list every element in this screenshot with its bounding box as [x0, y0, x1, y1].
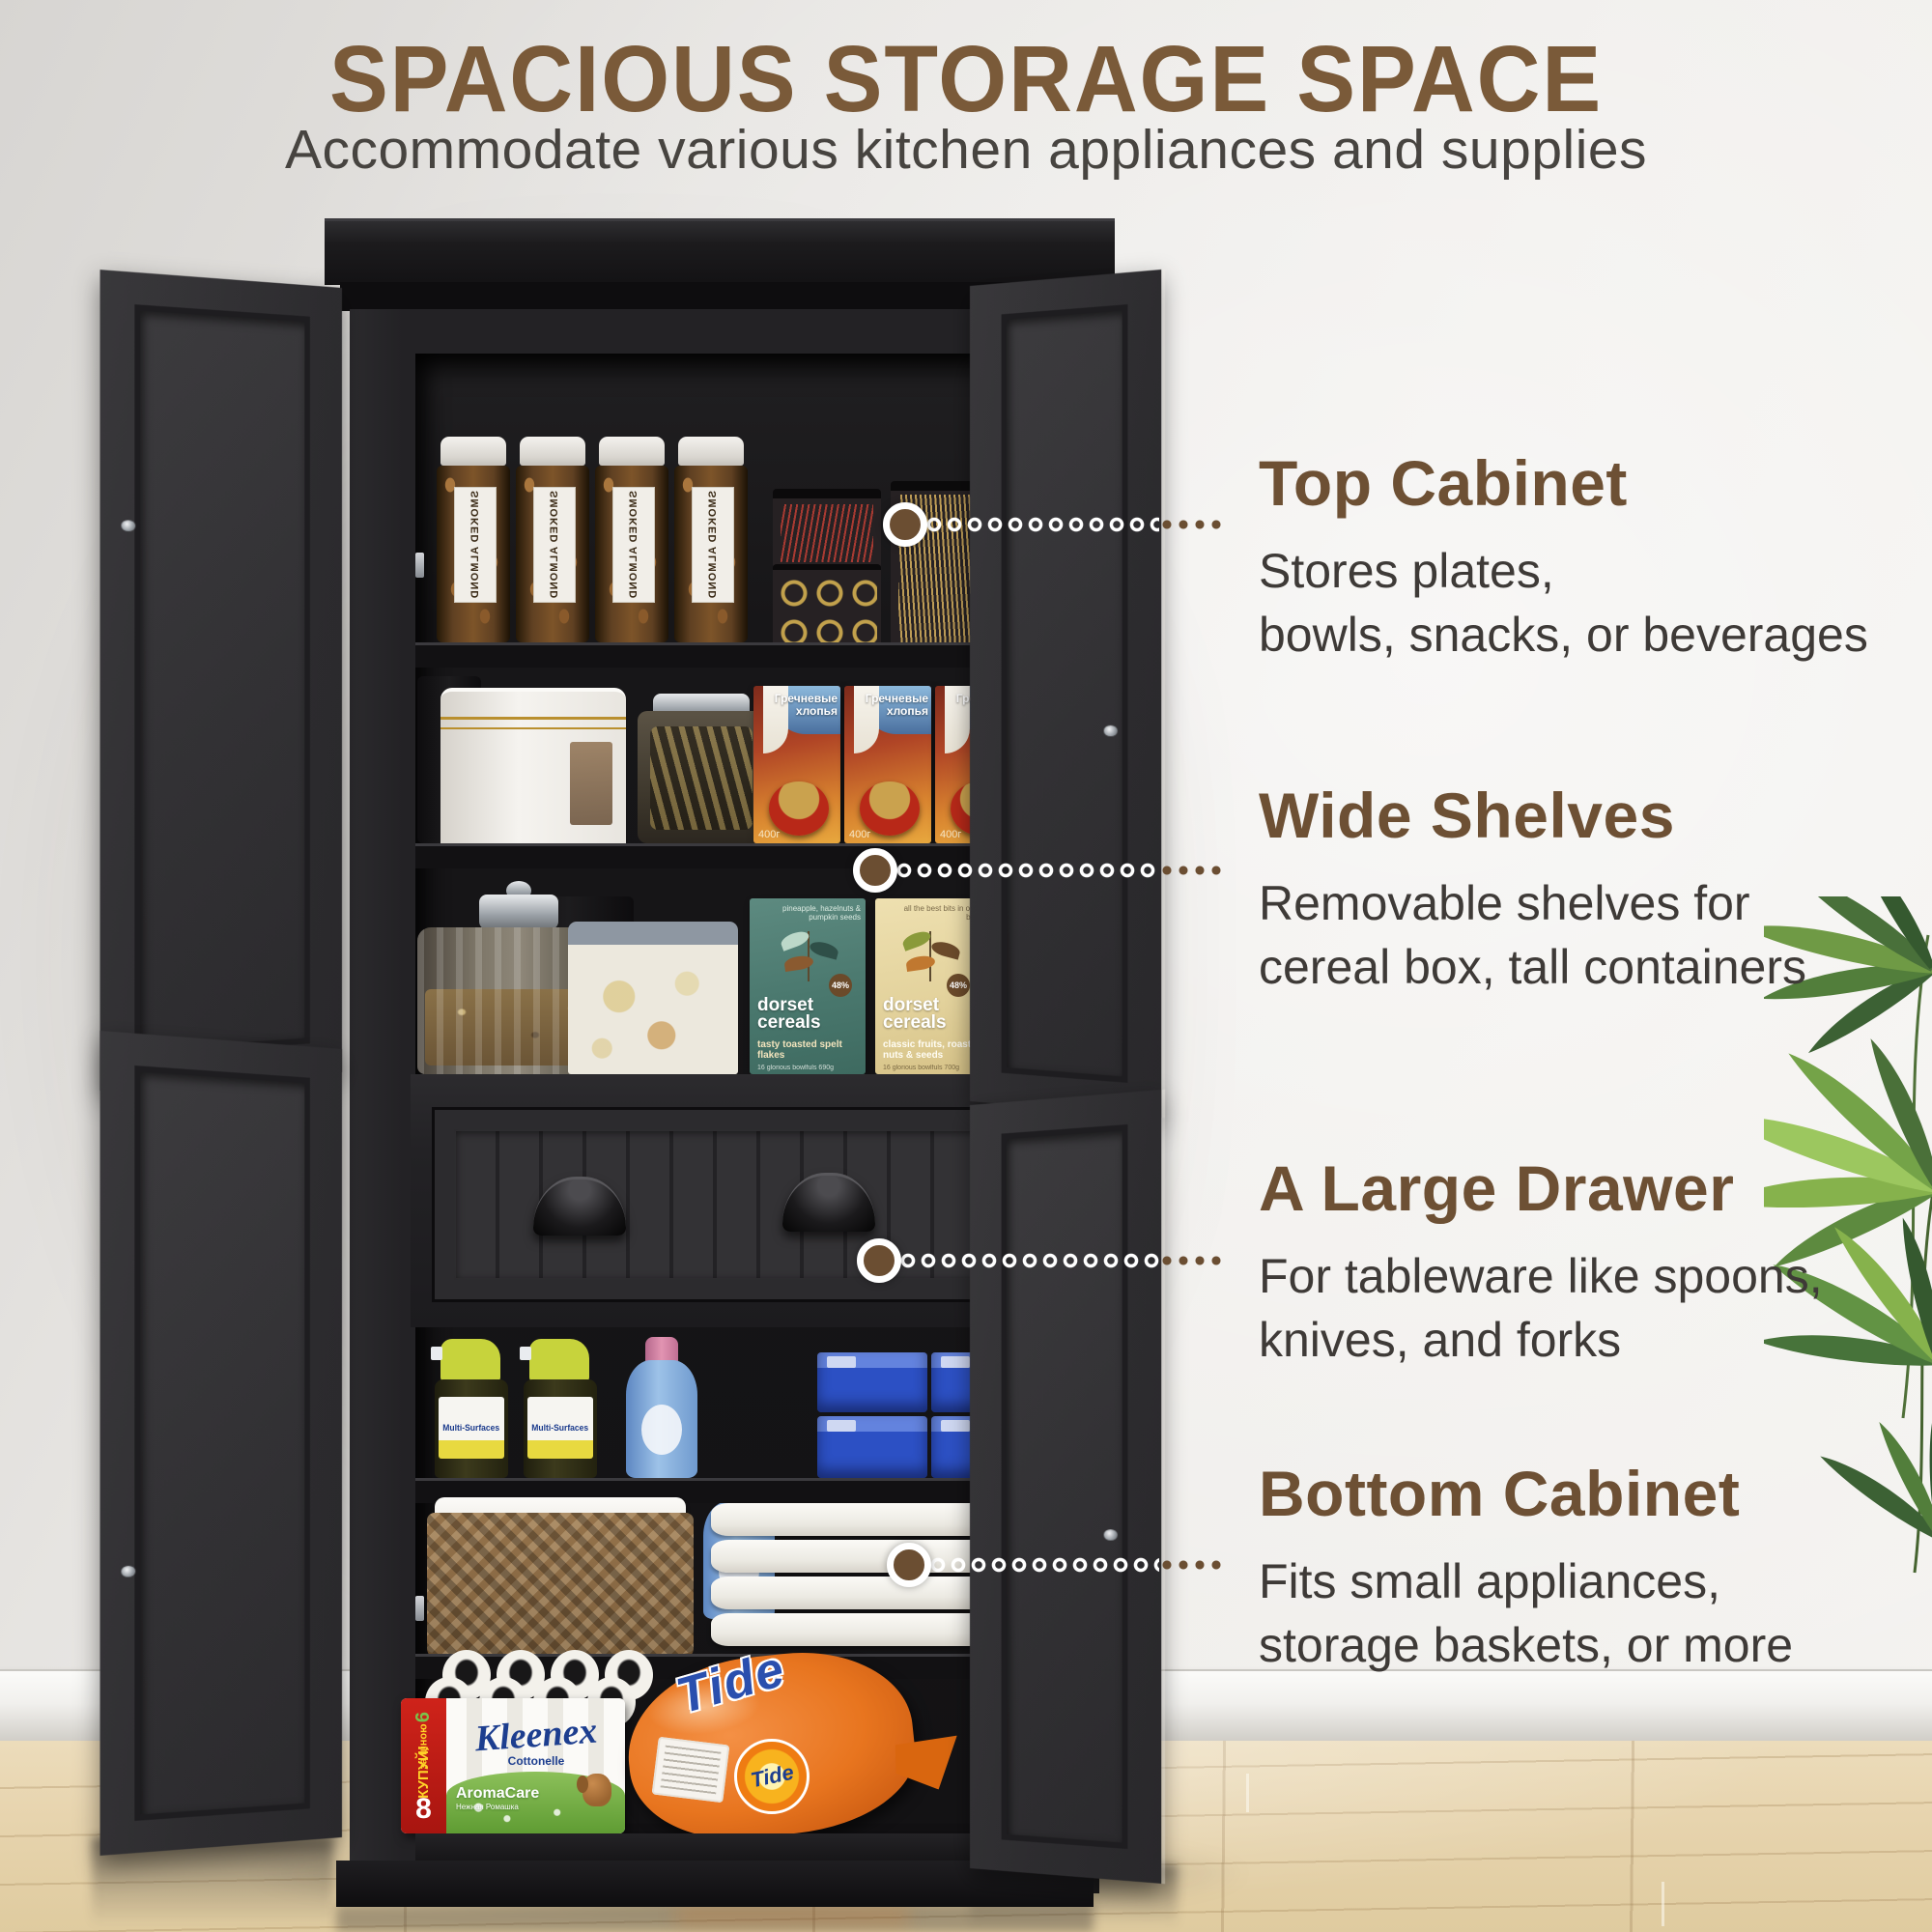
callout-line: Stores plates, — [1259, 539, 1925, 603]
almond-jar: SMOKED ALMOND — [674, 437, 748, 642]
jar-cap — [440, 437, 506, 466]
kleenex-promo-panel: 6 за ціною КУПУЙ! 8 — [401, 1698, 446, 1833]
door-knob — [121, 520, 135, 531]
callout-wide-shelves: Wide Shelves Removable shelves for cerea… — [1259, 779, 1925, 999]
callout-body: Stores plates, bowls, snacks, or beverag… — [1259, 539, 1925, 667]
door-panel — [1002, 304, 1128, 1083]
leader-line-dots — [1159, 1559, 1225, 1571]
kleenex-meadow: AromaCare Нежная Ромашка — [446, 1772, 625, 1833]
cereal-box: Гречневые хлопья 400г — [844, 686, 931, 843]
tide-info-label — [652, 1737, 730, 1804]
jar-label: SMOKED ALMOND — [533, 487, 576, 603]
dorset-box-teal: pineapple, hazelnuts & pumpkin seeds 48%… — [750, 898, 866, 1074]
leaf-motif — [929, 931, 931, 981]
floral-canister — [568, 922, 738, 1074]
pasta-container-red — [773, 489, 881, 568]
callout-marker-bottom-cabinet — [887, 1543, 931, 1587]
callout-line: For tableware like spoons, — [1259, 1244, 1925, 1308]
jar-cap — [599, 437, 665, 466]
leader-line-dots — [1159, 1255, 1225, 1266]
door-panel — [134, 304, 310, 1056]
spray-bottle: Multi-Surfaces — [522, 1339, 601, 1478]
almond-jar: SMOKED ALMOND — [595, 437, 668, 642]
plank-seam — [1662, 1882, 1664, 1926]
floral-pattern — [568, 945, 738, 1074]
door-knob — [1104, 1529, 1118, 1540]
leader-line-rings — [924, 516, 1159, 533]
leader-line-rings — [895, 862, 1159, 879]
dorset-variant: classic fruits, roasted nuts & seeds — [883, 1039, 983, 1061]
callout-line: storage baskets, or more — [1259, 1613, 1925, 1677]
callout-line: Fits small appliances, — [1259, 1549, 1925, 1613]
dorset-note: all the best bits in one box — [903, 904, 979, 922]
spray-bottle: Multi-Surfaces — [433, 1339, 512, 1478]
door-bottom-left — [100, 1031, 342, 1856]
dorset-note: pineapple, hazelnuts & pumpkin seeds — [780, 904, 861, 922]
jar-label: SMOKED ALMOND — [692, 487, 734, 603]
cereal-weight: 400г — [849, 829, 870, 840]
promo-text: КУПУЙ! — [415, 1746, 432, 1799]
leaf-motif — [808, 931, 810, 981]
spray-label: Multi-Surfaces — [527, 1397, 593, 1459]
spray-body: Multi-Surfaces — [435, 1379, 508, 1478]
cereal-bowl-art — [769, 781, 829, 836]
spray-body: Multi-Surfaces — [524, 1379, 597, 1478]
percent-badge: 48% — [829, 974, 852, 997]
drawer-front — [432, 1107, 1023, 1302]
almond-jar: SMOKED ALMOND — [516, 437, 589, 642]
tide-bullseye-logo: Tide — [734, 1739, 810, 1814]
spray-trigger — [440, 1339, 500, 1381]
callout-title: Top Cabinet — [1259, 446, 1925, 520]
almond-jar: SMOKED ALMOND — [437, 437, 510, 642]
dorset-variant: tasty toasted spelt flakes — [757, 1039, 866, 1061]
glass-jar — [638, 711, 765, 843]
callout-body: Fits small appliances, storage baskets, … — [1259, 1549, 1925, 1677]
pasta-rings — [777, 574, 877, 644]
cereal-box: Гречневые хлопья 400г — [753, 686, 840, 843]
callout-line: knives, and forks — [1259, 1308, 1925, 1372]
wicker-basket — [427, 1513, 694, 1660]
jar-label: SMOKED ALMOND — [454, 487, 497, 603]
callout-line: cereal box, tall containers — [1259, 935, 1925, 999]
callout-title: A Large Drawer — [1259, 1151, 1925, 1225]
dorset-brand: dorset cereals — [757, 997, 866, 1032]
plank-seam — [1246, 1774, 1249, 1812]
red-pasta — [781, 504, 873, 562]
cabinet-crown — [325, 218, 1115, 285]
spray-trigger — [529, 1339, 589, 1381]
cereal-weight: 400г — [940, 829, 961, 840]
cereal-title: Гречневые хлопья — [844, 693, 928, 717]
callout-line: bowls, snacks, or beverages — [1259, 603, 1925, 667]
spray-label: Multi-Surfaces — [439, 1397, 504, 1459]
detergent-bottle — [626, 1337, 697, 1478]
callout-large-drawer: A Large Drawer For tableware like spoons… — [1259, 1151, 1925, 1372]
cereal-weight: 400г — [758, 829, 780, 840]
leader-line-rings — [928, 1556, 1159, 1574]
hinge — [415, 1596, 424, 1621]
leader-line-dots — [1159, 519, 1225, 530]
callout-body: Removable shelves for cereal box, tall c… — [1259, 871, 1925, 999]
bottle-cap — [645, 1337, 678, 1362]
dorset-footer: 16 glorious bowlfuls 700g — [883, 1065, 959, 1071]
jar-label: SMOKED ALMOND — [612, 487, 655, 603]
callout-marker-large-drawer — [857, 1238, 901, 1283]
leader-line-rings — [898, 1252, 1159, 1269]
callout-marker-wide-shelves — [853, 848, 897, 893]
cereal-bowl-art — [860, 781, 920, 836]
dorset-box-cream: all the best bits in one box 48% dorset … — [875, 898, 983, 1074]
blue-storage-box — [817, 1416, 927, 1478]
cereal-title: Гречневые хлопья — [753, 693, 838, 717]
page-subtitle: Accommodate various kitchen appliances a… — [0, 118, 1932, 182]
door-knob — [1104, 725, 1118, 736]
kleenex-subbrand: Cottonelle — [455, 1754, 617, 1768]
gold-band — [440, 717, 626, 729]
callout-line: Removable shelves for — [1259, 871, 1925, 935]
callout-title: Bottom Cabinet — [1259, 1457, 1925, 1530]
door-top-left — [100, 270, 342, 1091]
door-panel — [134, 1065, 310, 1821]
promo-6: 6 — [412, 1712, 435, 1722]
callout-marker-top-cabinet — [883, 502, 927, 547]
callout-body: For tableware like spoons, knives, and f… — [1259, 1244, 1925, 1372]
door-knob — [121, 1566, 135, 1577]
canister-art — [570, 742, 612, 825]
product-infographic: SPACIOUS STORAGE SPACE Accommodate vario… — [0, 0, 1932, 1932]
tide-reflection — [676, 1905, 908, 1926]
dorset-brand: dorset cereals — [883, 997, 983, 1032]
jar-cap — [520, 437, 585, 466]
leader-line-dots — [1159, 865, 1225, 876]
callout-top-cabinet: Top Cabinet Stores plates, bowls, snacks… — [1259, 446, 1925, 667]
fluted-jar-lid — [479, 895, 558, 929]
kleenex-pack: 6 за ціною КУПУЙ! 8 Kleenex Cottonelle A… — [401, 1698, 625, 1833]
dorset-footer: 16 glorious bowlfuls 690g — [757, 1065, 834, 1071]
pasta-container-rings — [773, 564, 881, 648]
door-panel — [1002, 1124, 1128, 1849]
kleenex-variant: AromaCare Нежная Ромашка — [456, 1785, 539, 1811]
puppy-art — [582, 1774, 611, 1806]
callout-bottom-cabinet: Bottom Cabinet Fits small appliances, st… — [1259, 1457, 1925, 1677]
door-bottom-right — [970, 1090, 1161, 1884]
white-canister — [440, 688, 626, 847]
shelf-1 — [415, 642, 1036, 668]
callout-title: Wide Shelves — [1259, 779, 1925, 852]
percent-badge: 48% — [947, 974, 970, 997]
jar-cap — [678, 437, 744, 466]
hinge — [415, 553, 424, 578]
door-top-right — [970, 270, 1161, 1118]
blue-storage-box — [817, 1352, 927, 1412]
